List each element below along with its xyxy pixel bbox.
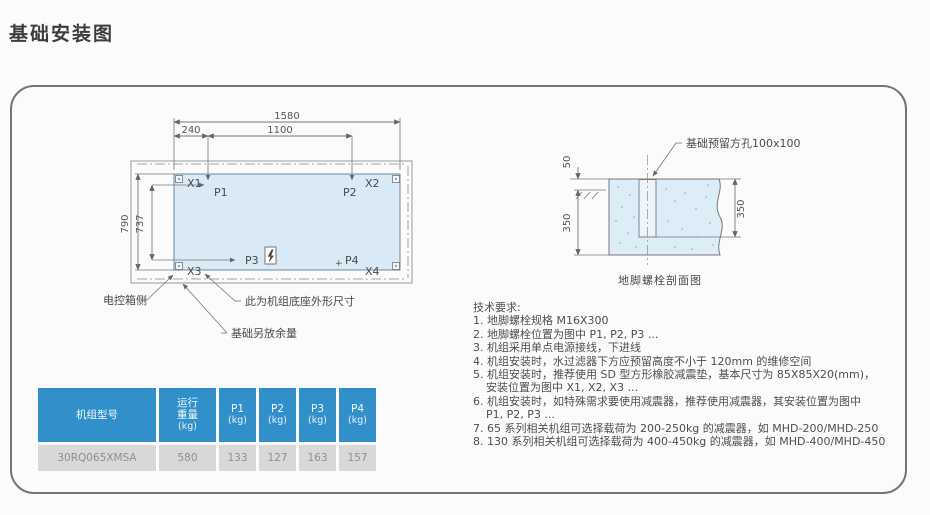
table-data-row: 30RQ065XMSA 580 133 127 163 157: [38, 445, 376, 471]
col-label: P3: [311, 403, 324, 415]
label-control-box-side: 电控箱侧: [103, 293, 147, 307]
dim-slot-depth: 350: [736, 199, 747, 218]
tech-line: 3. 机组采用单点电源接线，下进线: [473, 341, 918, 354]
tech-line: 1. 地脚螺栓规格 M16X300: [473, 314, 918, 327]
anchor-marker-x3: [176, 263, 183, 270]
col-label: P2: [271, 403, 284, 415]
dim-left-offset: 240: [181, 125, 200, 136]
section-caption: 地脚螺栓剖面图: [618, 273, 702, 287]
label-x1: X1: [187, 177, 202, 190]
col-unit: (kg): [178, 421, 197, 433]
concrete-block: [609, 179, 722, 255]
col-header-p4: P4 (kg): [339, 388, 376, 442]
col-label: 运行重量: [175, 397, 201, 421]
anchor-marker-x4: [393, 263, 400, 270]
tech-line: 4. 机组安装时，水过滤器下方应预留高度不小于 120mm 的维修空间: [473, 355, 918, 368]
col-unit: (kg): [268, 415, 287, 427]
cell-p2: 127: [259, 445, 296, 471]
col-unit: (kg): [348, 415, 367, 427]
technical-requirements: 技术要求: 1. 地脚螺栓规格 M16X300 2. 地脚螺栓位置为图中 P1,…: [473, 301, 918, 448]
col-header-p2: P2 (kg): [259, 388, 296, 442]
col-label: 机组型号: [76, 409, 118, 421]
tech-line: 7. 65 系列相关机组可选择载荷为 200-250kg 的减震器，如 MHD-…: [473, 422, 918, 435]
foundation-plan-diagram: 1580 240 1100 790 737 X1 X2 X3 X4 P1 P2 …: [95, 108, 447, 348]
tech-line: P1, P2, P3 ...: [473, 408, 918, 421]
lightning-icon: [265, 247, 276, 264]
label-reserved-hole: 基础预留方孔100x100: [686, 136, 801, 150]
dim-above-ground: 50: [562, 156, 573, 169]
dim-total-width: 1580: [274, 111, 299, 122]
col-header-p3: P3 (kg): [299, 388, 336, 442]
col-header-weight: 运行重量 (kg): [159, 388, 216, 442]
col-header-p1: P1 (kg): [219, 388, 256, 442]
label-p1: P1: [214, 186, 228, 199]
page-title: 基础安装图: [9, 19, 114, 46]
tech-line: 2. 地脚螺栓位置为图中 P1, P2, P3 ...: [473, 328, 918, 341]
cell-p3: 163: [299, 445, 336, 471]
cell-model: 30RQ065XMSA: [38, 445, 156, 471]
col-label: P4: [351, 403, 364, 415]
label-x3: X3: [187, 265, 202, 278]
col-unit: (kg): [308, 415, 327, 427]
cell-weight: 580: [159, 445, 216, 471]
ground-hatching: [576, 192, 598, 199]
tech-title: 技术要求:: [473, 301, 918, 314]
col-label: P1: [231, 403, 244, 415]
label-p4: P4: [345, 254, 359, 267]
label-p3: P3: [245, 254, 259, 267]
label-foundation-margin: 基础另放余量: [231, 326, 297, 340]
anchor-marker-x2: [393, 176, 400, 183]
anchor-marker-x1: [176, 176, 183, 183]
tech-line: 8. 130 系列相关机组可选择载荷为 400-450kg 的减震器，如 MHD…: [473, 435, 918, 448]
dim-inner-height: 737: [135, 214, 146, 233]
p4-cross-mark: +: [335, 259, 343, 269]
tech-line: 5. 机组安装时，推荐使用 SD 型方形橡胶减震垫，基本尺寸为 85X85X20…: [473, 368, 918, 381]
col-unit: (kg): [228, 415, 247, 427]
dim-depth: 350: [562, 213, 573, 232]
table-header-row: 机组型号 运行重量 (kg) P1 (kg) P2 (kg) P3 (kg) P…: [38, 388, 376, 442]
dim-mid-span: 1100: [267, 125, 292, 136]
tech-line: 6. 机组安装时，如特殊需求要使用减震器，推荐使用减震器，其安装位置为图中: [473, 395, 918, 408]
cell-p1: 133: [219, 445, 256, 471]
label-x2: X2: [365, 177, 380, 190]
anchor-bolt-section-diagram: 50 350 350 基础预留方孔100x100 地脚螺栓剖面图: [470, 125, 900, 315]
col-header-model: 机组型号: [38, 388, 156, 442]
label-x4: X4: [365, 265, 380, 278]
label-p2: P2: [343, 186, 357, 199]
label-base-outline: 此为机组底座外形尺寸: [245, 294, 355, 308]
dim-outer-height: 790: [120, 214, 131, 233]
unit-weight-table: 机组型号 运行重量 (kg) P1 (kg) P2 (kg) P3 (kg) P…: [38, 388, 376, 471]
cell-p4: 157: [339, 445, 376, 471]
tech-line: 安装位置为图中 X1, X2, X3 ...: [473, 381, 918, 394]
